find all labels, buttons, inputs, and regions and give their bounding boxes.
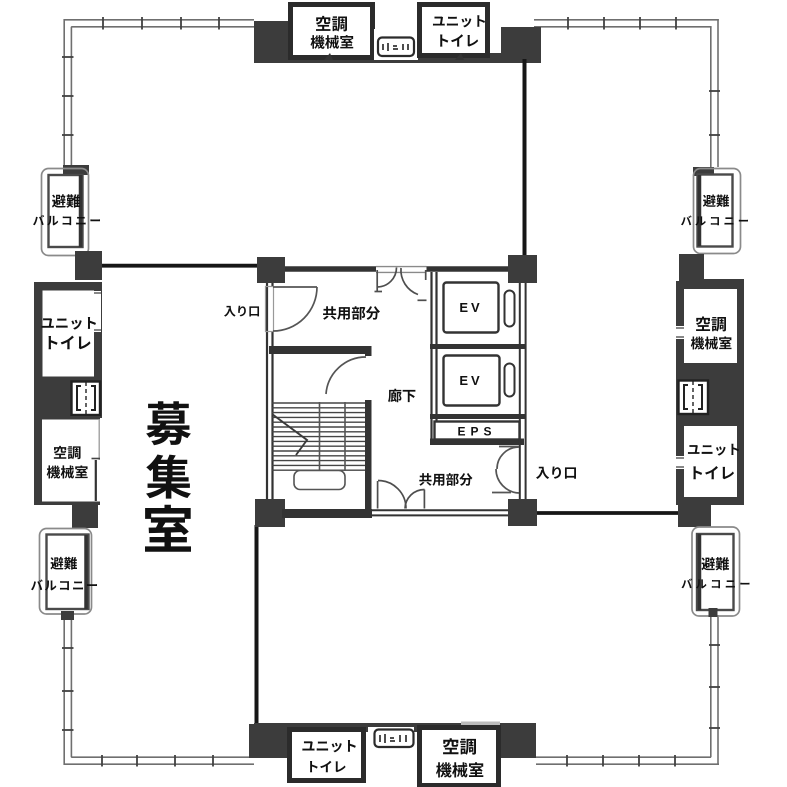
svg-text:EPS: EPS — [457, 425, 496, 439]
svg-text:EV: EV — [459, 300, 482, 315]
svg-text:EV: EV — [459, 373, 482, 388]
